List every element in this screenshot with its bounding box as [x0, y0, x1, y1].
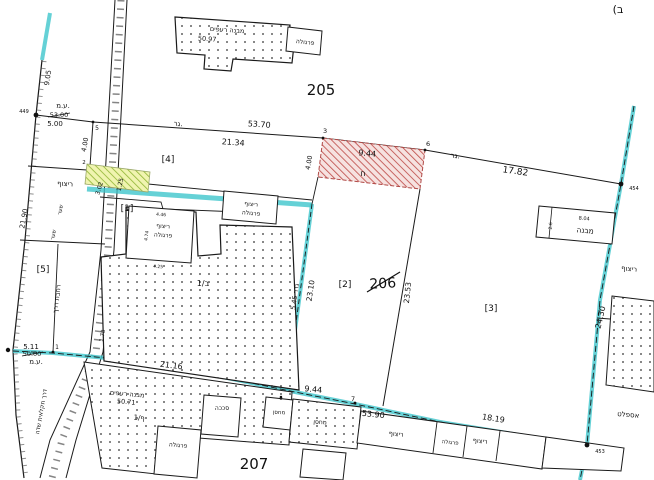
subparcel-1-label: [1]: [121, 204, 134, 214]
farm-road-label: דרך חקלאית שדה: [34, 388, 49, 435]
bl-building-id: 1/ף: [133, 414, 145, 423]
point-454-label: 454: [629, 186, 639, 192]
point-7-label: 7: [351, 395, 355, 403]
road-widening-label: רחבת דרך: [51, 284, 62, 314]
cyan-right-boundary: [580, 106, 634, 480]
right-building-area-value: 8.04: [578, 216, 590, 223]
measure-9-44-top: 9.44: [358, 148, 377, 159]
box1-dim-top: 4.46: [156, 212, 167, 219]
point-1-label: 1: [55, 344, 59, 351]
measure-5-00: 5.00: [47, 120, 63, 128]
bottom-left-pergola-box: [154, 426, 201, 478]
small-box-below-storage: [300, 449, 346, 480]
shed-box: [201, 395, 241, 437]
box1-pergola-label: פרגולה: [154, 231, 173, 239]
strip-upper-divider: [28, 166, 87, 170]
storage-label-1: מחסן: [273, 410, 286, 417]
measure-4-00-red: 4.00: [304, 155, 314, 171]
measure-24-30: 24.30: [594, 305, 608, 329]
point-449-label: 449: [19, 109, 29, 115]
box1-tiling-label: ריצוף: [156, 223, 170, 231]
point-454-dot: [619, 182, 624, 187]
point-9-label: 9: [279, 396, 282, 402]
point-3-label: 3: [323, 127, 327, 135]
tiling-label-left: ריצוף: [57, 179, 74, 188]
gate-label-2: שער: [50, 229, 58, 240]
point-west-dot: [6, 348, 10, 352]
redarea-to-cyan-link: [312, 177, 318, 204]
gar-abbrev-1: גר.: [173, 120, 183, 129]
measure-4-00-left: 4.00: [80, 137, 90, 153]
point-5-label: 5: [95, 125, 99, 132]
gar-abbrev-2: גר.: [450, 152, 460, 161]
point-453-label: 453: [595, 449, 605, 455]
cyan-top-left-segment: [42, 13, 50, 60]
point-2-label: 2: [82, 160, 86, 166]
shed-label: סככה: [215, 405, 229, 412]
box1-dim-bottom: 4.25: [153, 264, 164, 271]
measure-21-90: 21.90: [18, 208, 29, 229]
box2-tiling-label: ריצוף: [244, 200, 258, 208]
parcel-206-label: 206: [369, 275, 397, 292]
main-building-id: 1/ב: [197, 279, 210, 288]
tiling-label-bottom-1: ריצוף: [388, 429, 404, 439]
measure-23-53: 23.53: [402, 281, 413, 304]
subparcel-3-label: [3]: [485, 304, 498, 314]
subparcel-5-label: [5]: [37, 265, 50, 275]
parcel-207-label: 207: [240, 455, 269, 473]
measure-23-10: 23.10: [305, 279, 317, 302]
measure-21-34: 21.34: [221, 137, 244, 148]
top-tiled-building: [175, 17, 294, 71]
subparcel-2-label: [2]: [339, 280, 352, 290]
red-hatched-area: [318, 138, 425, 189]
corner-fragment-label: (ב: [613, 3, 624, 16]
right-building-label: מבנה: [576, 225, 594, 235]
point-5-dot: [92, 121, 95, 124]
top-building-area-value: 50.97: [198, 34, 217, 43]
point-6-label: 6: [426, 140, 430, 148]
subparcel-4-label: [4]: [162, 155, 175, 165]
right-building-box: [536, 206, 615, 244]
point-6-dot: [424, 149, 427, 152]
parcel-205-label: 205: [307, 81, 336, 99]
em-abbrev-top: ע.מ.: [56, 102, 70, 110]
strip-divider-line: [20, 240, 105, 244]
tiling-label-right: ריצוף: [621, 264, 638, 273]
measure-53-70: 53.70: [247, 119, 270, 130]
asphalt-label: אספלט: [617, 410, 640, 420]
point5-drop-line: [90, 122, 93, 166]
bottom-right-extension: [542, 437, 624, 471]
measure-18-19: 18.19: [481, 412, 505, 424]
em-abbrev-bottom: ע.מ.: [29, 358, 43, 366]
het-area-letter: ח: [360, 169, 365, 178]
bl-building-area-value: 50.71: [117, 397, 136, 407]
gate-label-1: שער: [57, 204, 65, 215]
point-1-dot: [52, 351, 55, 354]
measure-2-6: 2.6: [548, 222, 555, 230]
measure-9-05: 9.05: [43, 69, 53, 86]
storage-label-2: מחסן: [313, 419, 327, 427]
point-3-dot: [322, 137, 325, 140]
point-453-dot: [585, 443, 590, 448]
point-449-dot: [34, 113, 39, 118]
far-right-dotted-building: [606, 296, 654, 392]
survey-map-canvas: (ב 205 206 207 [1] [2] [3] [4] [5] מבנה …: [0, 0, 654, 480]
measure-9-44-bottom: 9.44: [304, 384, 323, 395]
cadastral-map: (ב 205 206 207 [1] [2] [3] [4] [5] מבנה …: [0, 0, 654, 480]
tiling-label-bottom-2: ריצוף: [472, 436, 488, 446]
